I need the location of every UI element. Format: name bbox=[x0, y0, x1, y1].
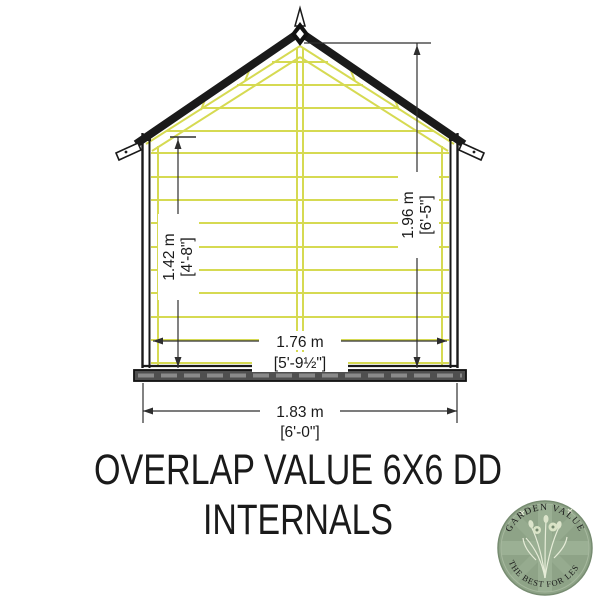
ridge-height-imperial: [6'-5"] bbox=[418, 195, 435, 234]
caption-line-2: INTERNALS bbox=[203, 496, 393, 544]
caption-line-1: OVERLAP VALUE 6X6 DD bbox=[94, 446, 502, 494]
external-width-metric: 1.83 m bbox=[276, 404, 323, 421]
internal-width-imperial: [5'-9½"] bbox=[274, 355, 326, 372]
ridge-height-metric: 1.96 m bbox=[400, 191, 417, 238]
dimension-label-masks bbox=[158, 172, 439, 419]
right-wall-plate bbox=[449, 134, 457, 141]
right-bargeboard-fixing bbox=[473, 151, 476, 154]
bargeboards bbox=[116, 143, 484, 160]
caption: OVERLAP VALUE 6X6 DD INTERNALS bbox=[94, 446, 502, 544]
right-bargeboard bbox=[459, 143, 484, 160]
wall-height-metric: 1.42 m bbox=[161, 233, 178, 280]
external-width-imperial: [6'-0"] bbox=[280, 424, 319, 441]
wall-height-imperial: [4'-8"] bbox=[179, 237, 196, 276]
roof-outline bbox=[136, 32, 464, 144]
shed-elevation-drawing: 1.42 m [4'-8"] 1.96 m [6'-5"] 1.76 m [5'… bbox=[0, 0, 600, 600]
shed-diagram-page: 1.42 m [4'-8"] 1.96 m [6'-5"] 1.76 m [5'… bbox=[0, 0, 600, 600]
left-bargeboard bbox=[116, 143, 141, 160]
internal-width-metric: 1.76 m bbox=[276, 334, 323, 351]
left-bargeboard-fixing bbox=[125, 151, 128, 154]
left-wall-plate bbox=[143, 134, 151, 141]
